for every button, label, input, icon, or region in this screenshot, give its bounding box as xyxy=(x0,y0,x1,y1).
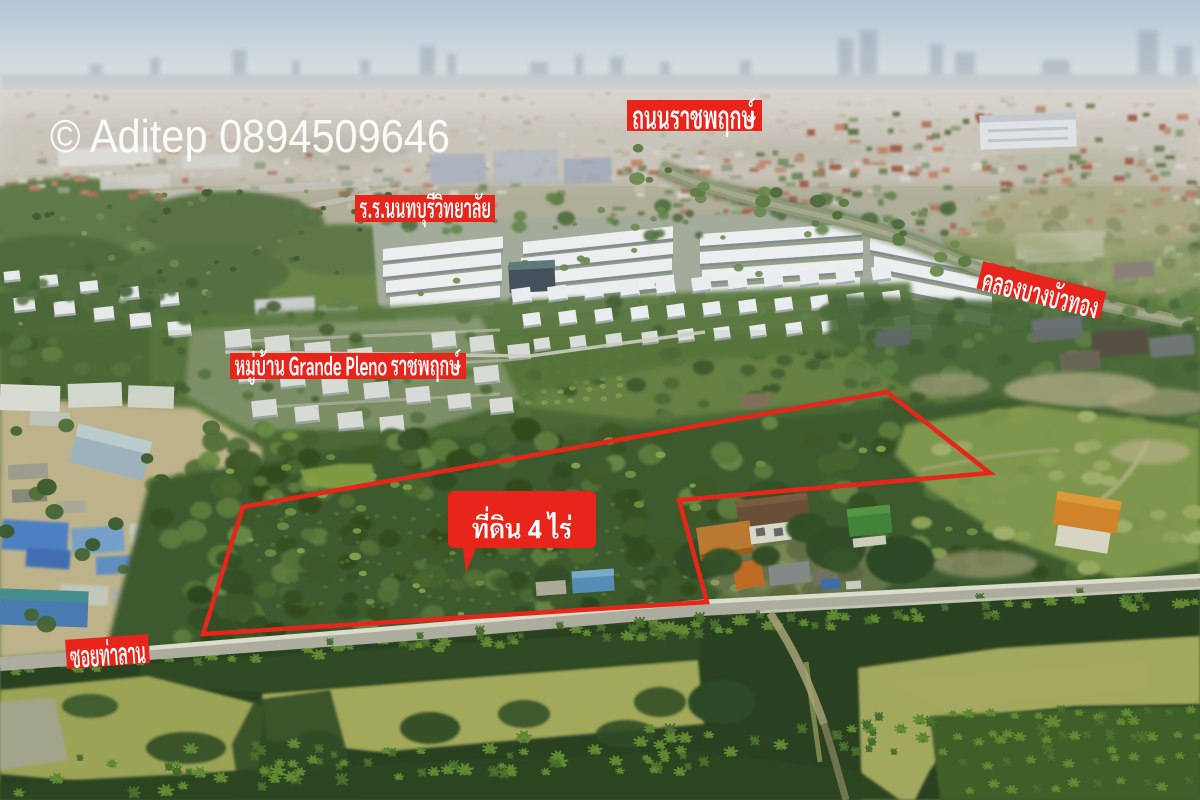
svg-text:© Aditep 0894509646: © Aditep 0894509646 xyxy=(50,110,450,162)
